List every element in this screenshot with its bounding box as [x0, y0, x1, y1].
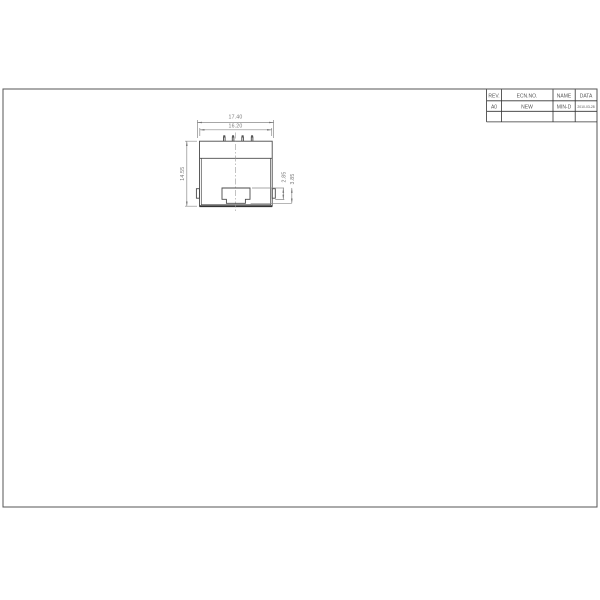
- svg-text:NAME: NAME: [557, 94, 572, 100]
- svg-text:NEW: NEW: [521, 104, 533, 110]
- svg-text:MIN-D: MIN-D: [557, 104, 572, 110]
- svg-text:2010-03-28: 2010-03-28: [577, 105, 594, 109]
- svg-text:A0: A0: [491, 104, 497, 110]
- svg-text:DATA: DATA: [580, 94, 593, 100]
- svg-text:ECN.NO.: ECN.NO.: [517, 94, 538, 100]
- svg-text:REV.: REV.: [488, 94, 499, 100]
- svg-text:2.85: 2.85: [282, 172, 288, 183]
- svg-text:17.40: 17.40: [229, 115, 243, 121]
- svg-text:16.20: 16.20: [229, 124, 243, 130]
- svg-text:14.55: 14.55: [180, 167, 186, 181]
- svg-text:3.85: 3.85: [290, 174, 296, 185]
